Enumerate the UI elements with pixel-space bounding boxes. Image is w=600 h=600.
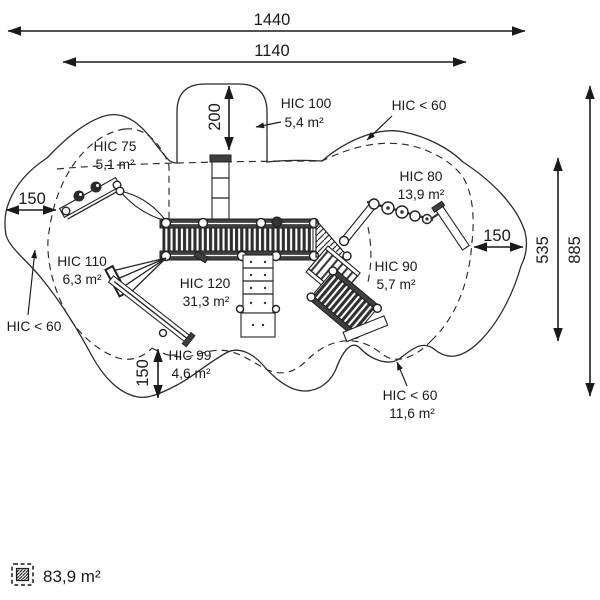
hold-highlight (96, 184, 99, 187)
dim-bottom-offset-value: 150 (134, 359, 152, 387)
climbing-hold (74, 191, 85, 202)
dimension-right-offset: 150 (474, 227, 523, 247)
hic-lt-60-bottom-leader-arrow (397, 362, 407, 386)
spindle-post (116, 187, 124, 195)
hic-110-label: HIC 110 (57, 254, 107, 269)
dim-right-offset-value: 150 (483, 227, 511, 245)
hic-100-area: 5,4 m² (284, 115, 324, 130)
hic-100-leader-arrow (256, 122, 281, 127)
zone-label-hic-lt-60-top: HIC < 60 (367, 98, 447, 140)
chain-traverse (340, 199, 471, 251)
ladder (237, 255, 280, 337)
hic-120-area: 31,3 m² (183, 294, 230, 309)
zone-label-hic-99: HIC 99 4,6 m² (169, 348, 212, 381)
dimension-bottom-offset: 150 (134, 349, 158, 398)
hic-100-label: HIC 100 (281, 96, 332, 111)
dim-top-offset-value: 200 (206, 103, 224, 131)
dim-left-offset-value: 150 (18, 190, 46, 208)
plan-drawing: 1440 1140 885 535 200 150 150 150 HIC 75… (0, 0, 600, 600)
hic-120-label: HIC 120 (180, 276, 231, 291)
rope-spindle (120, 191, 166, 221)
total-area-value: 83,9 m² (43, 567, 101, 586)
dimension-width-inner: 1140 (63, 42, 466, 62)
dim-height-inner-value: 535 (534, 236, 552, 264)
hic-lt-60-bottom-area: 11,6 m² (389, 406, 435, 421)
hic-75-label: HIC 75 (94, 139, 137, 154)
bridge-walkway (160, 217, 319, 263)
playground-plan-figure: 1440 1140 885 535 200 150 150 150 HIC 75… (0, 0, 600, 600)
hic-80-area: 13,9 m² (398, 187, 445, 202)
hold-highlight (79, 193, 82, 196)
dim-width-inner-value: 1140 (254, 42, 289, 60)
hic-90-label: HIC 90 (375, 259, 418, 274)
hic-lt-60-left-leader-arrow (28, 250, 35, 315)
hic-lt-60-top-leader-arrow (367, 116, 392, 140)
tower (210, 155, 231, 219)
area-icon-hatch (17, 569, 29, 581)
hic-75-area: 5,1 m² (95, 157, 135, 172)
impact-zone-divider (367, 227, 371, 286)
hic-110-area: 6,3 m² (62, 272, 102, 287)
dim-width-outer-value: 1440 (254, 11, 291, 29)
dim-height-outer-value: 885 (566, 236, 584, 264)
legend-total-area: 83,9 m² (12, 564, 101, 586)
zone-label-hic-lt-60-bottom: HIC < 60 11,6 m² (383, 362, 438, 421)
hic-90-area: 5,7 m² (376, 277, 416, 292)
dimension-height-inner: 535 (534, 158, 558, 341)
hic-80-label: HIC 80 (400, 169, 443, 184)
climbing-hold (91, 182, 102, 193)
hic-99-area: 4,6 m² (171, 366, 211, 381)
hic-99-label: HIC 99 (169, 348, 212, 363)
dimension-width-outer: 1440 (8, 11, 525, 31)
dimension-top-offset: 200 (206, 86, 229, 150)
slide-post (160, 330, 167, 337)
hic-lt-60-left-label: HIC < 60 (7, 319, 62, 334)
dimension-height-outer: 885 (566, 86, 590, 396)
zone-label-hic-80: HIC 80 13,9 m² (398, 169, 445, 202)
ramp-post (62, 207, 70, 215)
zone-label-hic-75: HIC 75 5,1 m² (94, 139, 137, 172)
zone-label-hic-110: HIC 110 6,3 m² (57, 254, 107, 287)
hic-lt-60-top-label: HIC < 60 (392, 98, 447, 113)
zone-label-hic-lt-60-left: HIC < 60 (7, 250, 62, 334)
hic-lt-60-bottom-label: HIC < 60 (383, 388, 438, 403)
zone-label-hic-120: HIC 120 31,3 m² (180, 276, 231, 309)
zone-label-hic-90: HIC 90 5,7 m² (375, 259, 418, 292)
